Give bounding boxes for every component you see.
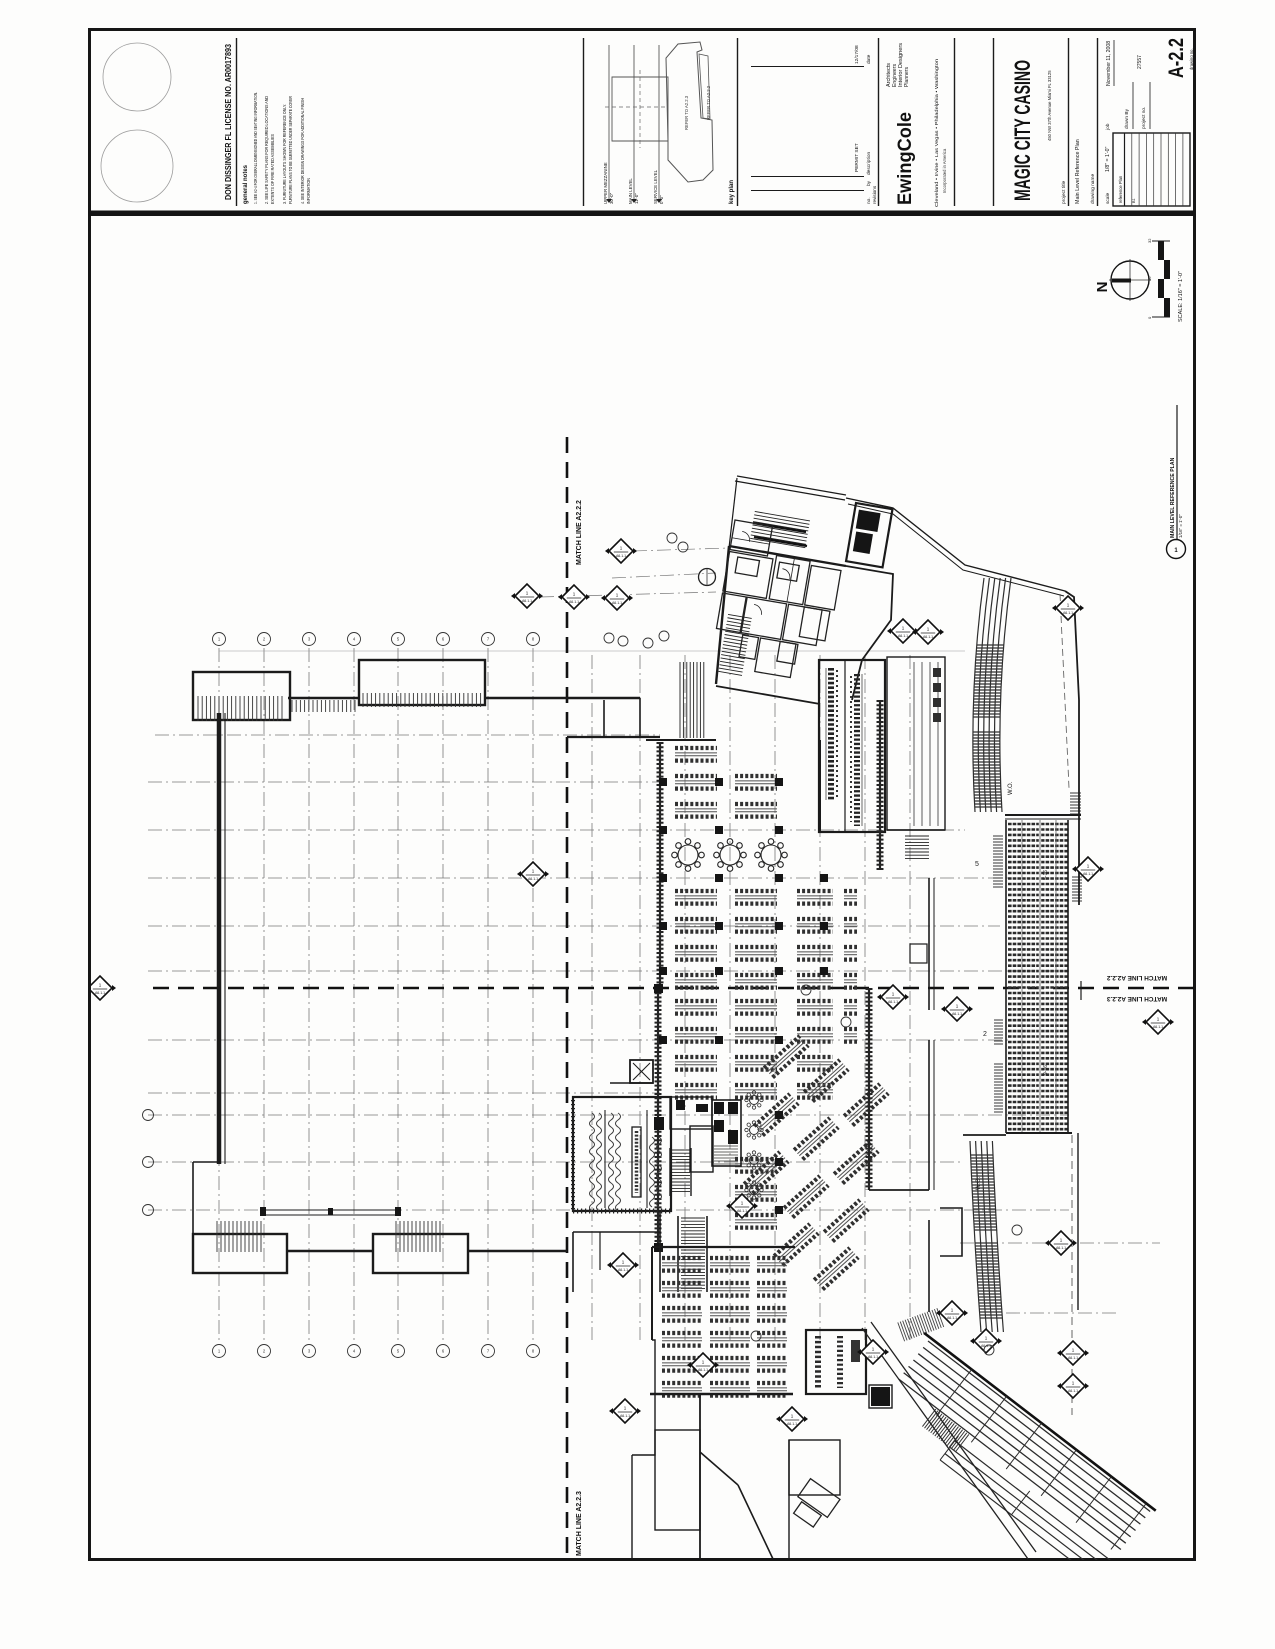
svg-text:PERMIT SET: PERMIT SET [854,143,860,172]
svg-text:A6.1.1: A6.1.1 [952,1012,962,1016]
svg-text:reference Plan: reference Plan [1118,175,1123,203]
svg-text:Planners: Planners [904,66,910,87]
svg-text:A6.1.1: A6.1.1 [1063,611,1073,615]
svg-text:12/17/08: 12/17/08 [854,45,860,64]
svg-text:description: description [866,151,872,175]
svg-text:A6.1.1: A6.1.1 [612,601,622,605]
svg-text:key plan: key plan [729,180,735,204]
svg-text:A6.1.1: A6.1.1 [528,877,538,881]
svg-text:drawing no.: drawing no. [1189,48,1194,70]
svg-text:UPPER MEZZANINE: UPPER MEZZANINE [603,162,608,204]
svg-text:27557: 27557 [1137,55,1143,69]
svg-text:3. FURNITURE LAYOUTS SHOWN FOR: 3. FURNITURE LAYOUTS SHOWN FOR REFERENCE… [282,104,287,204]
svg-text:date: date [866,54,872,64]
svg-text:A6.1.1: A6.1.1 [868,1355,878,1359]
svg-text:MAIN LEVEL REFERENCE PLAN: MAIN LEVEL REFERENCE PLAN [1170,457,1176,538]
svg-text:MATCH LINE A2.2.2: MATCH LINE A2.2.2 [1106,974,1167,981]
svg-text:revisions: revisions [872,185,877,204]
svg-text:A6.1.1: A6.1.1 [923,635,933,639]
svg-text:drawn By: drawn By [1124,108,1130,129]
svg-text:project no.: project no. [1141,107,1147,129]
svg-text:A6.1.1: A6.1.1 [1056,1246,1066,1250]
svg-text:A6.1.1: A6.1.1 [616,554,626,558]
svg-text:SCALE: 1/16" = 1'-0": SCALE: 1/16" = 1'-0" [1178,271,1184,322]
svg-text:450 NW 37th Avenue Miami FL 3: 450 NW 37th Avenue Miami FL 33125 [1047,70,1052,141]
svg-text:16: 16 [1147,276,1152,281]
svg-text:A6.1.1: A6.1.1 [737,1209,747,1213]
svg-text:A6.1.1: A6.1.1 [522,599,532,603]
svg-text:A6.1.1: A6.1.1 [787,1422,797,1426]
svg-text:30'-0": 30'-0" [609,192,614,204]
svg-text:November 11, 2008: November 11, 2008 [1106,41,1112,86]
svg-text:W.O.: W.O. [1008,781,1014,795]
svg-text:5-16: 5-16 [1043,870,1049,880]
svg-text:A6.1.1: A6.1.1 [698,1368,708,1372]
svg-text:A6.1.1: A6.1.1 [620,1414,630,1418]
svg-text:MATCH LINE A2.2.3: MATCH LINE A2.2.3 [576,1491,583,1556]
svg-text:A6.1.1: A6.1.1 [1153,1025,1163,1029]
svg-text:SERVICE LEVEL: SERVICE LEVEL [653,169,658,204]
svg-text:32: 32 [1147,238,1152,243]
svg-text:11'-0": 11'-0" [634,193,639,204]
svg-text:1/16" = 1'-0": 1/16" = 1'-0" [1178,514,1183,538]
svg-text:1/8" = 1'-0": 1/8" = 1'-0" [1105,147,1111,172]
svg-text:A6.1.1: A6.1.1 [947,1316,957,1320]
svg-text:by: by [866,180,872,186]
svg-text:Main Level Reference Plan: Main Level Reference Plan [1075,139,1081,204]
svg-text:1. SEE A2-4 FOR OVERALL DIMENS: 1. SEE A2-4 FOR OVERALL DIMENSIONED AND … [253,92,258,204]
svg-text:A6.1.1: A6.1.1 [898,634,908,638]
svg-text:A6.1.1: A6.1.1 [95,991,105,995]
svg-text:A6.1.1: A6.1.1 [1083,872,1093,876]
svg-text:N: N [1094,282,1111,293]
svg-text:REFER TO A2.2.2: REFER TO A2.2.2 [706,85,711,120]
svg-text:W.O.: W.O. [976,1176,982,1190]
svg-text:A6.1.1: A6.1.1 [1068,1389,1078,1393]
svg-text:0'-0": 0'-0" [659,195,664,204]
svg-text:A6.1.1: A6.1.1 [1068,1356,1078,1360]
svg-text:FURNITURE PLANS TO BE SUBMITTE: FURNITURE PLANS TO BE SUBMITTED UNDER SE… [288,95,293,204]
svg-text:drawing name: drawing name [1090,174,1096,204]
svg-text:9-16: 9-16 [1043,1065,1049,1075]
svg-text:Incorporated in America: Incorporated in America [942,148,947,193]
svg-text:MATCH LINE A2.2.2: MATCH LINE A2.2.2 [576,500,583,565]
svg-text:4. SEE INTERIOR DESIGN DRAWING: 4. SEE INTERIOR DESIGN DRAWINGS FOR ADDI… [300,98,305,204]
svg-text:MAIN LEVEL: MAIN LEVEL [628,178,633,204]
svg-text:Cleveland • Irvine • Las Vegas: Cleveland • Irvine • Las Vegas • Philade… [934,59,940,207]
svg-text:EXTENTS OF FIRE RATED ASSEMBLI: EXTENTS OF FIRE RATED ASSEMBLIES [270,134,275,204]
svg-text:2: 2 [983,1031,987,1038]
svg-text:EwingCole: EwingCole [894,112,916,205]
svg-text:A-2.2: A-2.2 [1165,38,1188,78]
svg-text:general notes: general notes [243,164,249,204]
svg-text:INFORMATION: INFORMATION [306,178,311,204]
svg-text:A6.1.1: A6.1.1 [888,1000,898,1004]
svg-text:project title: project title [1061,180,1067,204]
svg-text:B1: B1 [1132,198,1136,203]
svg-text:MAGIC CITY CASINO: MAGIC CITY CASINO [1010,60,1035,201]
svg-text:DON DISSINGER FL LICENSE NO. A: DON DISSINGER FL LICENSE NO. AR0017893 [224,44,233,200]
svg-text:A6.1.1: A6.1.1 [618,1268,628,1272]
svg-text:5: 5 [975,861,979,868]
svg-text:A6.1.1: A6.1.1 [569,600,579,604]
svg-text:scale: scale [1105,192,1111,204]
svg-text:2. SEE LIFE SAFETY PLANS FOR R: 2. SEE LIFE SAFETY PLANS FOR REQUIRED LO… [264,95,269,204]
svg-text:MATCH LINE A2.2.3: MATCH LINE A2.2.3 [1106,995,1167,1002]
svg-text:REFER TO A2.2.3: REFER TO A2.2.3 [684,95,689,130]
svg-text:job: job [1105,123,1111,131]
